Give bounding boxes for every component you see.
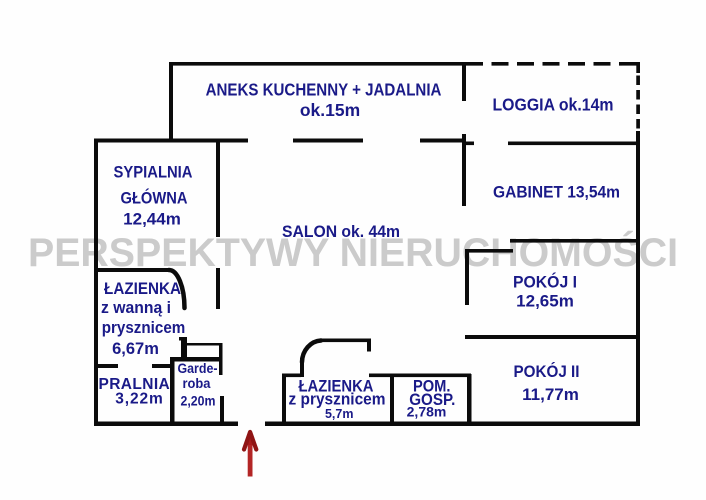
- svg-text:ŁAZIENKA: ŁAZIENKA: [104, 280, 181, 298]
- svg-text:2,78m: 2,78m: [407, 404, 447, 420]
- svg-text:6,67m: 6,67m: [112, 340, 159, 358]
- svg-text:SYPIALNIA: SYPIALNIA: [114, 163, 193, 182]
- svg-text:11,77m: 11,77m: [522, 385, 579, 404]
- svg-text:ok.15m: ok.15m: [300, 100, 360, 120]
- svg-text:POKÓJ II: POKÓJ II: [514, 362, 580, 381]
- svg-text:ANEKS KUCHENNY + JADALNIA: ANEKS KUCHENNY + JADALNIA: [206, 79, 442, 100]
- svg-text:POKÓJ I: POKÓJ I: [513, 273, 577, 292]
- svg-text:12,65m: 12,65m: [516, 292, 574, 311]
- svg-text:prysznicem: prysznicem: [102, 319, 186, 337]
- svg-text:z prysznicem: z prysznicem: [289, 391, 386, 409]
- svg-text:LOGGIA ok.14m: LOGGIA ok.14m: [493, 95, 614, 115]
- svg-text:5,7m: 5,7m: [325, 407, 354, 421]
- svg-text:roba: roba: [183, 376, 211, 391]
- svg-text:SALON ok. 44m: SALON ok. 44m: [282, 222, 400, 241]
- svg-text:z wanną i: z wanną i: [101, 299, 171, 317]
- svg-text:GŁÓWNA: GŁÓWNA: [121, 189, 188, 208]
- svg-text:Garde-: Garde-: [178, 361, 218, 376]
- svg-text:GABINET 13,54m: GABINET 13,54m: [493, 183, 620, 202]
- svg-text:3,22m: 3,22m: [115, 391, 163, 408]
- svg-text:12,44m: 12,44m: [123, 210, 181, 229]
- svg-text:2,20m: 2,20m: [181, 394, 216, 409]
